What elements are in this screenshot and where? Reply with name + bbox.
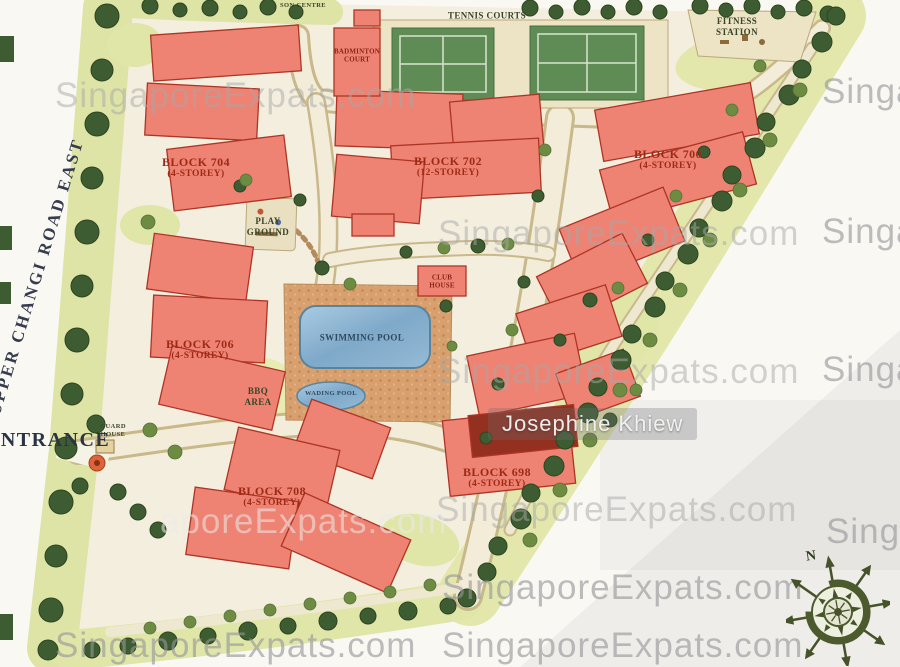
block-700-storey: (4-STOREY): [634, 162, 702, 173]
label-centre: SON CENTRE: [280, 2, 326, 10]
block-704-storey: (4-STOREY): [162, 170, 230, 181]
label-tennis-courts: TENNIS COURTS: [448, 11, 526, 22]
compass-rose-icon: [786, 546, 890, 666]
fitness-line2: STATION: [716, 27, 758, 38]
block-706-storey: (4-STOREY): [166, 352, 234, 363]
map-labels: SON CENTRE BADMINTON COURT TENNIS COURTS…: [0, 0, 900, 667]
label-block-704: BLOCK 704 (4-STOREY): [162, 155, 230, 181]
label-swimming-pool: SWIMMING POOL: [320, 333, 404, 344]
block-702-name: BLOCK 702: [414, 154, 482, 168]
label-entrance: ENTRANCE: [0, 429, 110, 452]
label-block-698: BLOCK 698 (4-STOREY): [463, 465, 531, 491]
label-block-706: BLOCK 706 (4-STOREY): [166, 337, 234, 363]
label-block-708: BLOCK 708 (4-STOREY): [238, 484, 306, 510]
label-badminton-court: BADMINTON COURT: [334, 48, 380, 65]
badminton-line2: COURT: [334, 56, 380, 64]
block-700-name: BLOCK 700: [634, 147, 702, 161]
site-plan-page: SingaporeExpats.com SingaporeExpats.com …: [0, 0, 900, 667]
label-fitness-station: FITNESS STATION: [716, 16, 758, 38]
badminton-line1: BADMINTON: [334, 48, 380, 56]
block-704-name: BLOCK 704: [162, 155, 230, 169]
clubhouse-line2: HOUSE: [429, 282, 455, 290]
block-708-storey: (4-STOREY): [238, 499, 306, 510]
label-block-702: BLOCK 702 (12-STOREY): [414, 154, 482, 180]
label-block-700: BLOCK 700 (4-STOREY): [634, 147, 702, 173]
block-706-name: BLOCK 706: [166, 337, 234, 351]
block-702-storey: (12-STOREY): [414, 169, 482, 180]
playground-line1: PLAY: [247, 216, 289, 227]
label-wading-pool: WADING POOL: [305, 390, 357, 398]
credit-overlay: Josephine Khiew: [488, 408, 697, 440]
playground-line2: GROUND: [247, 227, 289, 238]
block-698-storey: (4-STOREY): [463, 480, 531, 491]
block-708-name: BLOCK 708: [238, 484, 306, 498]
bbq-line2: AREA: [244, 397, 271, 408]
label-playground: PLAY GROUND: [247, 216, 289, 238]
label-bbq-area: BBQ AREA: [244, 386, 271, 408]
bbq-line1: BBQ: [244, 386, 271, 397]
block-698-name: BLOCK 698: [463, 465, 531, 479]
clubhouse-line1: CLUB: [429, 274, 455, 282]
fitness-line1: FITNESS: [716, 16, 758, 27]
compass-north-label: N: [805, 548, 817, 565]
label-club-house: CLUB HOUSE: [429, 274, 455, 291]
